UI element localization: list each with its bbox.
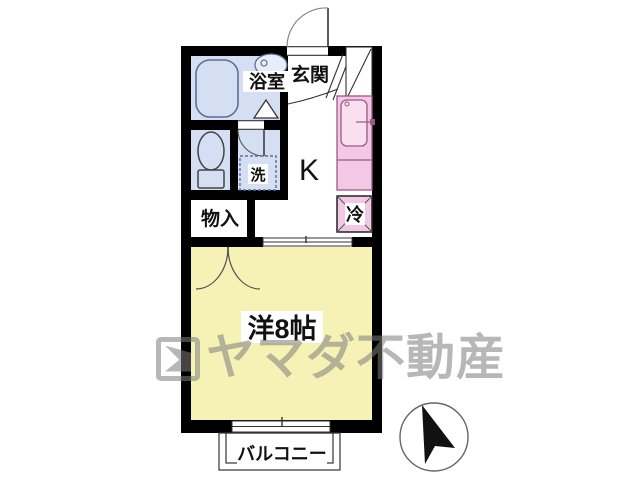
kitchen-label: K	[299, 154, 319, 187]
shoe-cabinet	[346, 47, 372, 100]
bathtub-icon	[196, 60, 238, 117]
laundry-label: 洗	[250, 166, 265, 184]
storage-label: 物入	[201, 207, 239, 230]
bathroom-label: 浴室	[249, 71, 285, 92]
entrance-door	[287, 8, 328, 56]
floorplan-page: 浴室 玄関 洗 K	[0, 0, 640, 480]
main-room-label: 洋8帖	[247, 313, 316, 344]
sliding-door-kitchen-room	[263, 236, 352, 246]
compass-north-icon	[400, 403, 468, 471]
fridge-label: 冷	[346, 204, 364, 225]
kitchen-counter-icon	[337, 96, 375, 190]
floorplan-drawing: 浴室 玄関 洗 K	[0, 0, 640, 480]
balcony-label: バルコニー	[237, 444, 327, 464]
entrance-label: 玄関	[291, 63, 329, 86]
